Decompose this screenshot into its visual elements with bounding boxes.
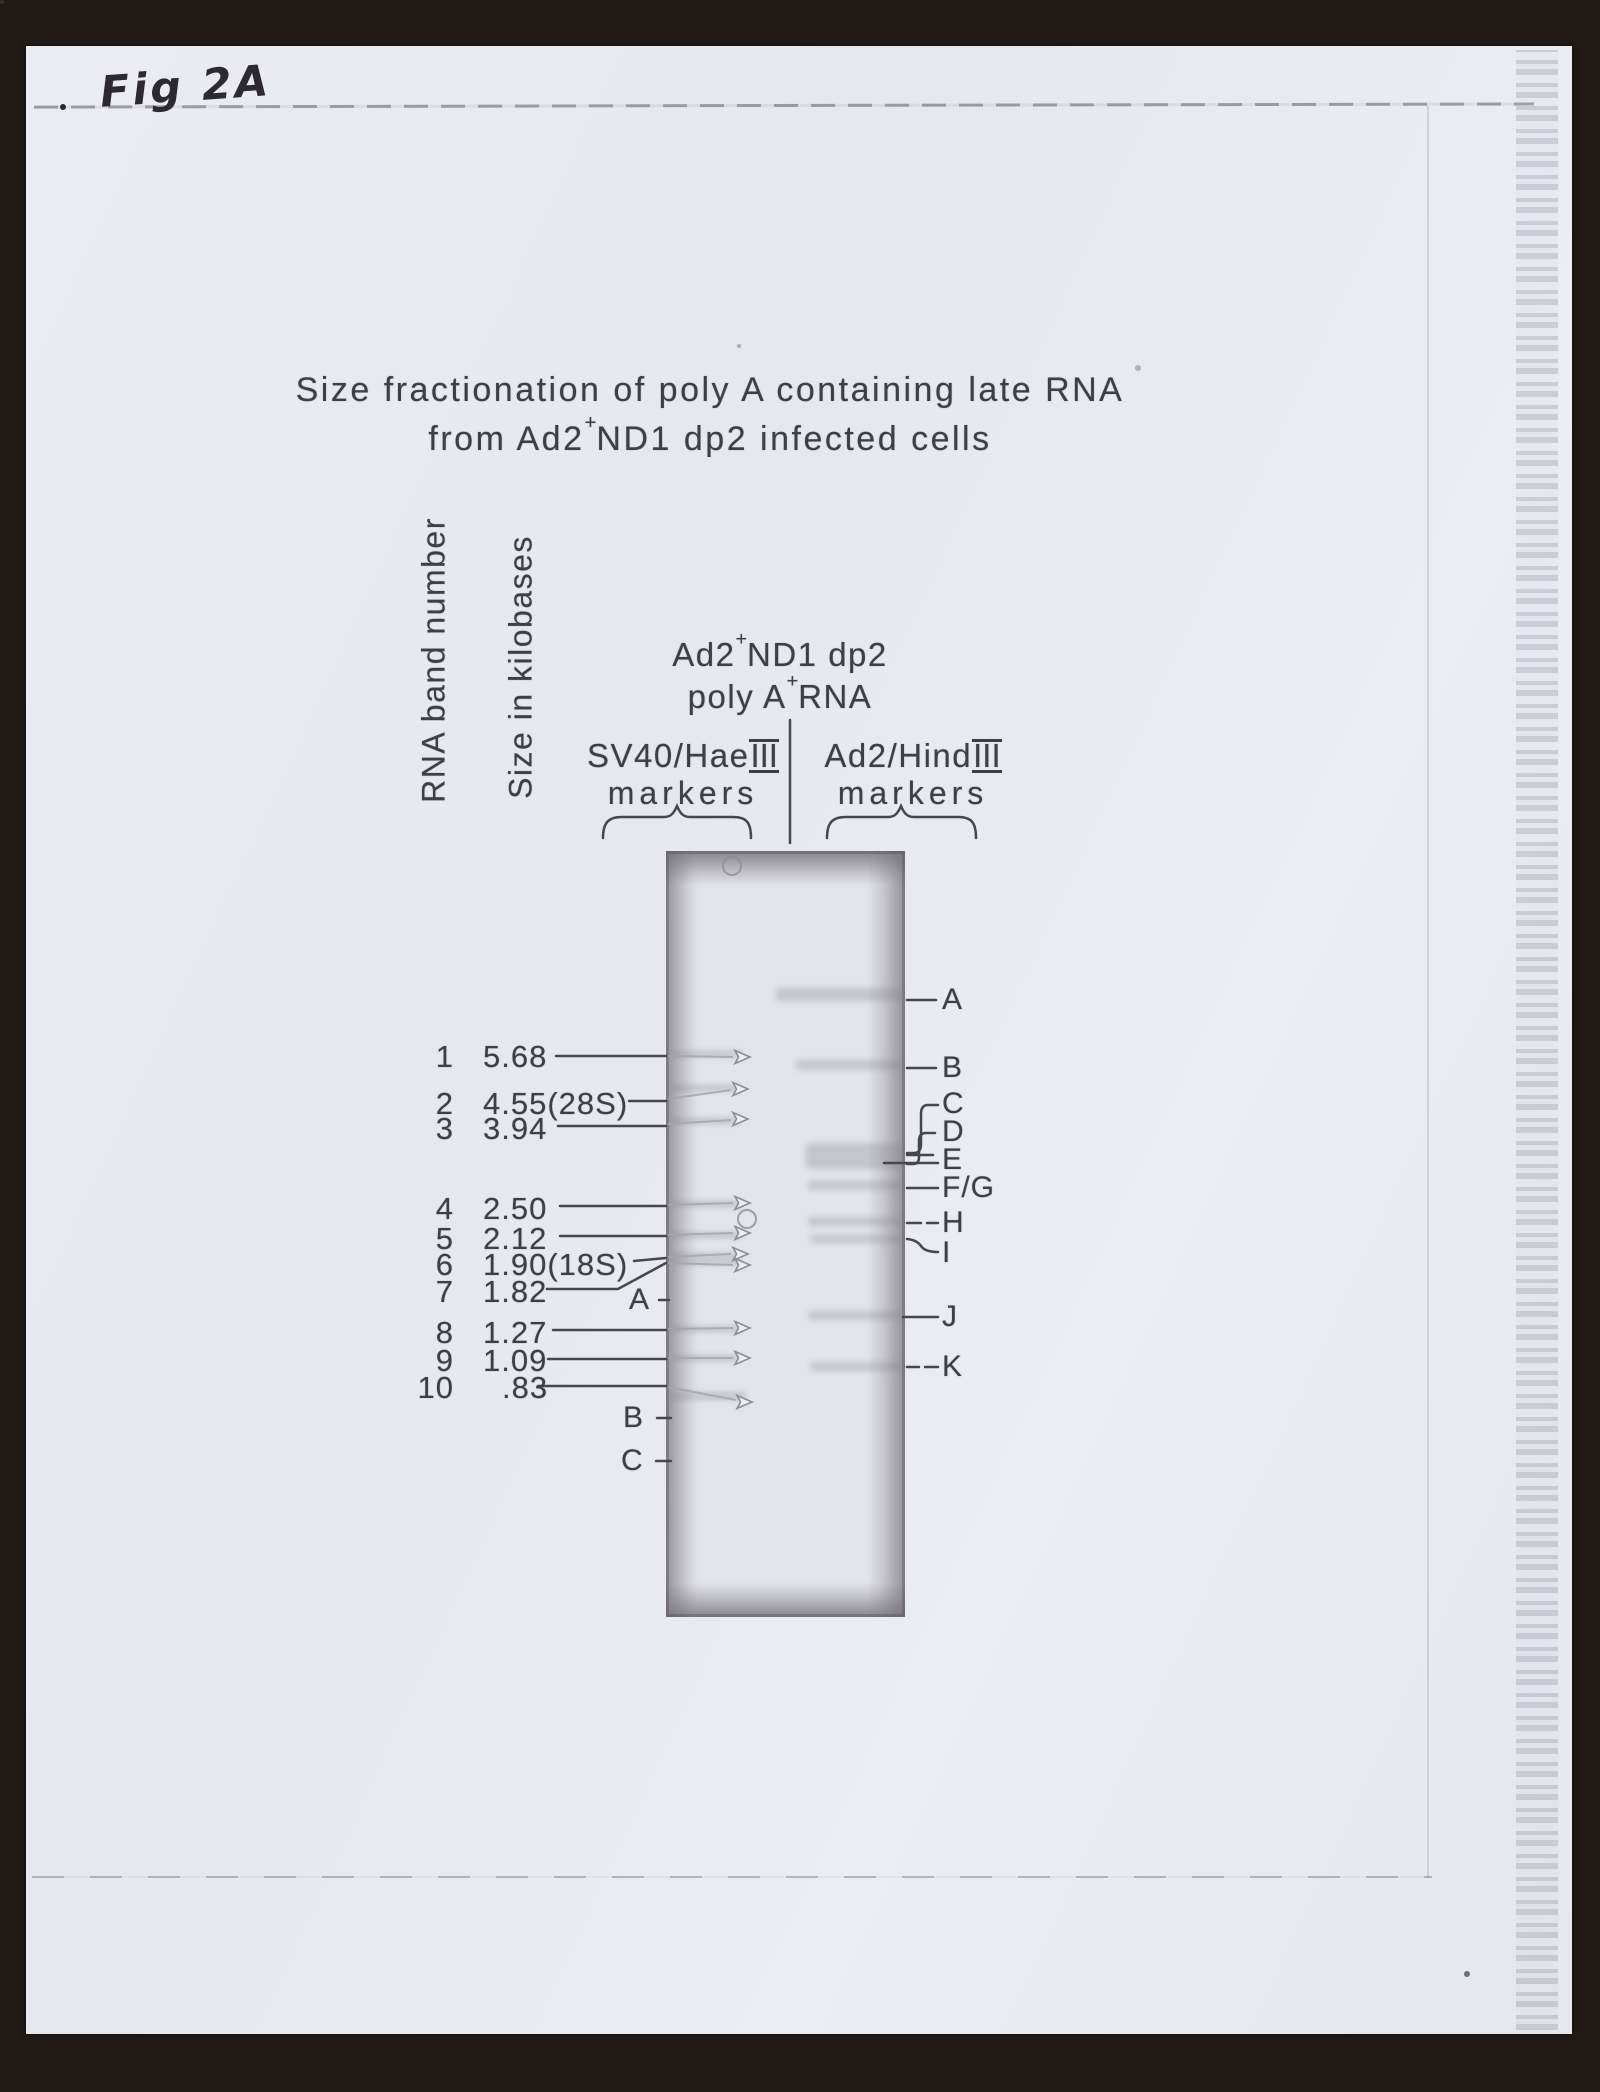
in-gel-line-band-2: [668, 1090, 731, 1099]
band-size: 3.94: [483, 1111, 547, 1147]
connector-right-label-c: [907, 1105, 938, 1153]
gel-label-right-b: B: [942, 1051, 963, 1085]
tick-right-label-e: [884, 1155, 938, 1163]
gel-label-right-fg: F/G: [942, 1171, 995, 1205]
gel-label-right-i: I: [942, 1236, 951, 1270]
band-number: 7: [398, 1274, 454, 1310]
band-number: 1: [398, 1039, 454, 1075]
gel-label-right-a: A: [942, 983, 963, 1017]
band-arrowhead: [735, 1322, 750, 1335]
in-gel-line-band-1: [668, 1056, 733, 1057]
connector-right-label-i: [907, 1239, 938, 1252]
band-arrowhead: [733, 1083, 748, 1096]
band-arrowhead: [737, 1396, 752, 1409]
gel-label-left-c: C: [621, 1444, 644, 1478]
band-size: 1.82: [483, 1274, 547, 1310]
scanned-paper-figure: { "page": { "fig_label": "Fig 2A", "titl…: [0, 0, 1600, 2092]
band-arrowhead: [735, 1197, 750, 1210]
band-arrowhead: [735, 1051, 750, 1064]
in-gel-line-band-7: [668, 1263, 733, 1265]
gel-label-left-a: A: [629, 1283, 650, 1317]
figure-annotations: [0, 0, 1600, 2092]
band-number: 10: [398, 1370, 454, 1406]
gel-label-right-j: J: [942, 1300, 958, 1334]
band-arrowhead: [735, 1259, 750, 1272]
gel-label-left-b: B: [623, 1401, 644, 1435]
gel-well-circle: [723, 857, 741, 875]
gel-label-right-h: H: [942, 1206, 965, 1240]
in-gel-line-band-8: [668, 1328, 733, 1329]
gel-bubble-circle: [738, 1210, 756, 1228]
leader-line-band-6: [634, 1258, 666, 1261]
band-size: 5.68: [483, 1039, 547, 1075]
gel-label-right-k: K: [942, 1350, 963, 1384]
band-number: 3: [398, 1111, 454, 1147]
in-gel-line-band-4: [668, 1203, 733, 1205]
in-gel-line-band-6: [668, 1254, 731, 1257]
band-arrowhead: [733, 1113, 748, 1126]
band-arrowhead: [735, 1352, 750, 1365]
in-gel-line-band-3: [668, 1120, 731, 1124]
in-gel-line-band-5: [668, 1233, 733, 1235]
brace-right-lane: [827, 806, 976, 838]
in-gel-line-band-10: [668, 1387, 736, 1400]
brace-left-lane: [603, 806, 751, 838]
band-size: .83: [502, 1370, 548, 1406]
